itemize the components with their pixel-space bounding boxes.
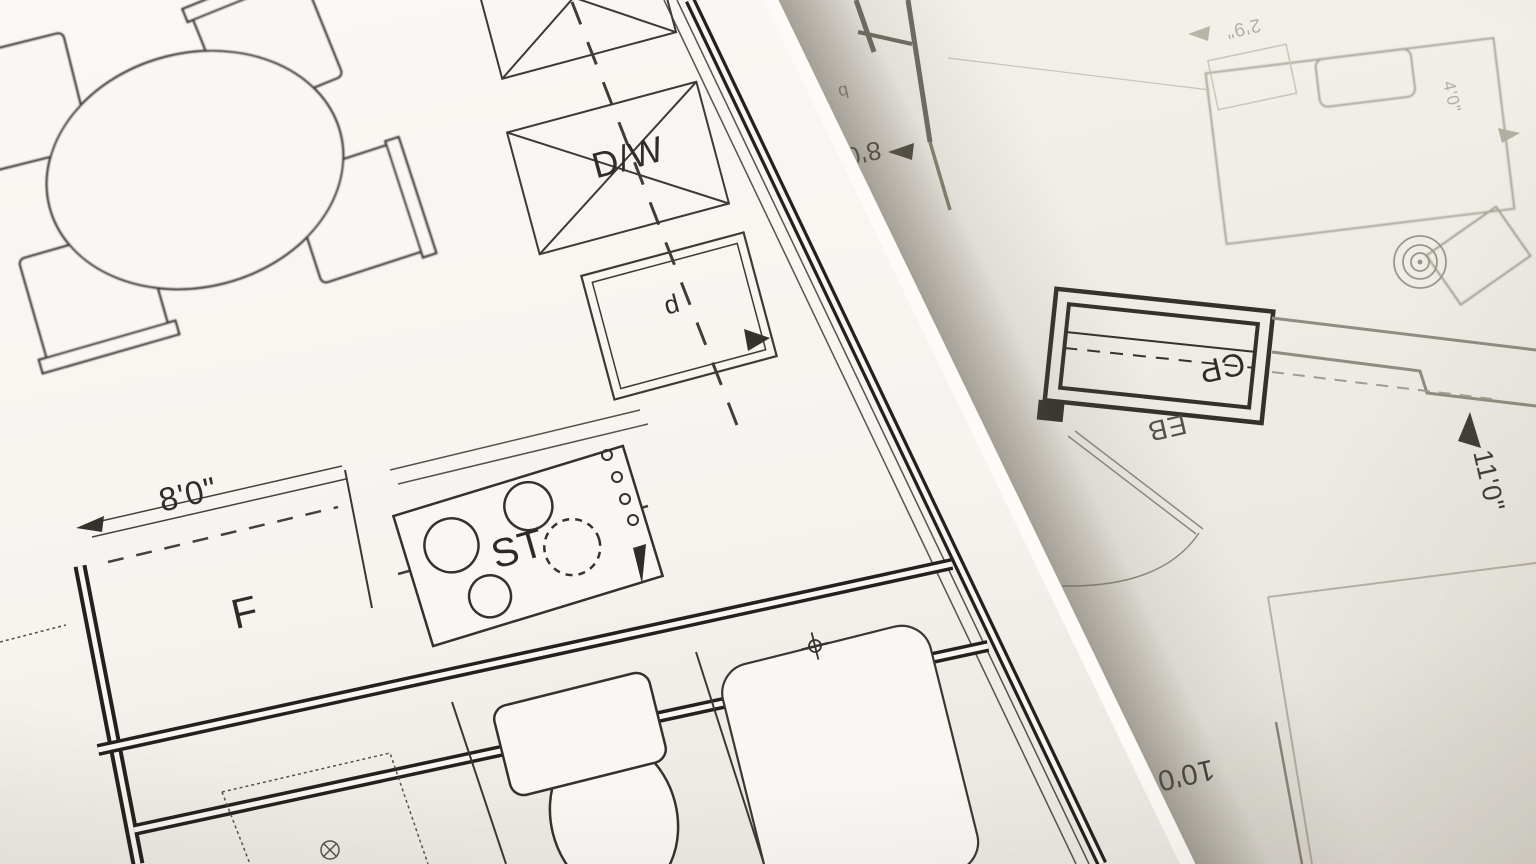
photo-of-floor-plans: b 8'0" CP EB 11'0" 10'0" bbox=[0, 0, 1536, 864]
floor-plan-scene: b 8'0" CP EB 11'0" 10'0" bbox=[0, 0, 1536, 864]
